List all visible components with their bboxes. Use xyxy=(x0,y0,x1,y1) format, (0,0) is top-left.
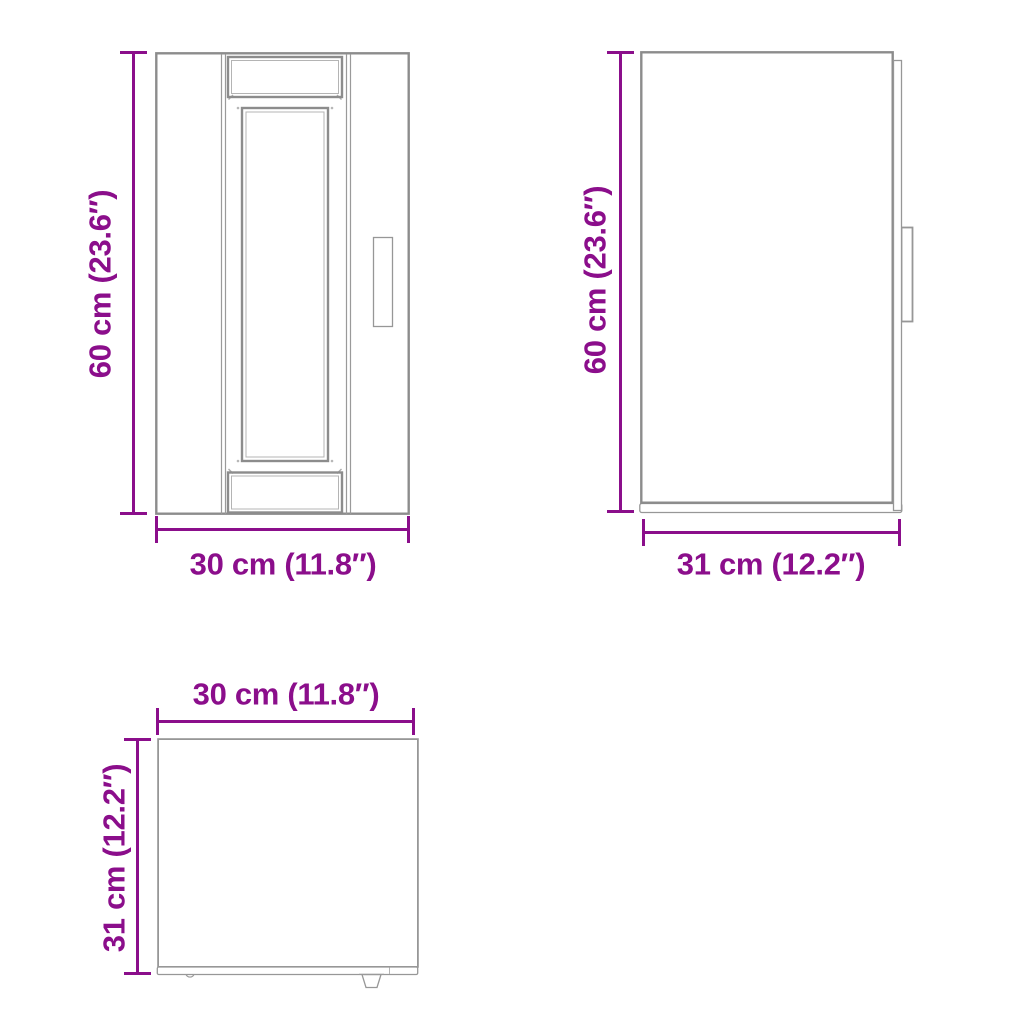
dimension-line xyxy=(136,739,139,975)
front-width-label: 30 cm (11.8″) xyxy=(190,549,377,580)
dimension-cap xyxy=(412,708,415,735)
door-center-panel xyxy=(242,108,328,461)
side-handle xyxy=(902,228,913,322)
side-door-edge xyxy=(894,61,902,511)
dimension-cap xyxy=(124,738,151,741)
side-view-drawing xyxy=(639,51,915,515)
top-view-drawing xyxy=(156,738,420,990)
side-height-label: 60 cm (23.6″) xyxy=(580,186,611,374)
dimension-line xyxy=(619,52,622,513)
dimension-line xyxy=(156,528,409,531)
side-width-label: 31 cm (12.2″) xyxy=(677,549,865,580)
dimension-cap xyxy=(642,519,645,546)
top-depth-label: 31 cm (12.2″) xyxy=(99,764,130,952)
door-top-rail xyxy=(228,57,342,97)
cabinet-side-outline xyxy=(641,52,892,502)
dimension-cap xyxy=(120,51,147,54)
dimension-cap xyxy=(156,708,159,735)
top-width-label: 30 cm (11.8″) xyxy=(193,679,380,710)
dimension-cap xyxy=(898,519,901,546)
side-bottom-strip xyxy=(640,504,902,513)
top-handle xyxy=(362,975,381,988)
front-height-label: 60 cm (23.6″) xyxy=(85,190,116,378)
dimension-cap xyxy=(155,516,158,543)
dimension-cap xyxy=(407,516,410,543)
door-bottom-rail xyxy=(228,473,342,513)
dimension-cap xyxy=(120,512,147,515)
dimension-cap xyxy=(124,972,151,975)
dimension-cap xyxy=(607,510,634,513)
front-view-drawing xyxy=(155,52,411,516)
dimension-cap xyxy=(607,51,634,54)
cabinet-top-outline xyxy=(158,739,418,967)
door-handle-front xyxy=(374,238,393,327)
dimension-diagram: 60 cm (23.6″) 30 cm (11.8″) 60 cm (23.6″… xyxy=(0,0,1024,1024)
top-door-strip xyxy=(157,967,417,975)
dimension-line xyxy=(132,52,135,515)
dimension-line xyxy=(643,531,900,534)
dimension-line xyxy=(157,720,415,723)
